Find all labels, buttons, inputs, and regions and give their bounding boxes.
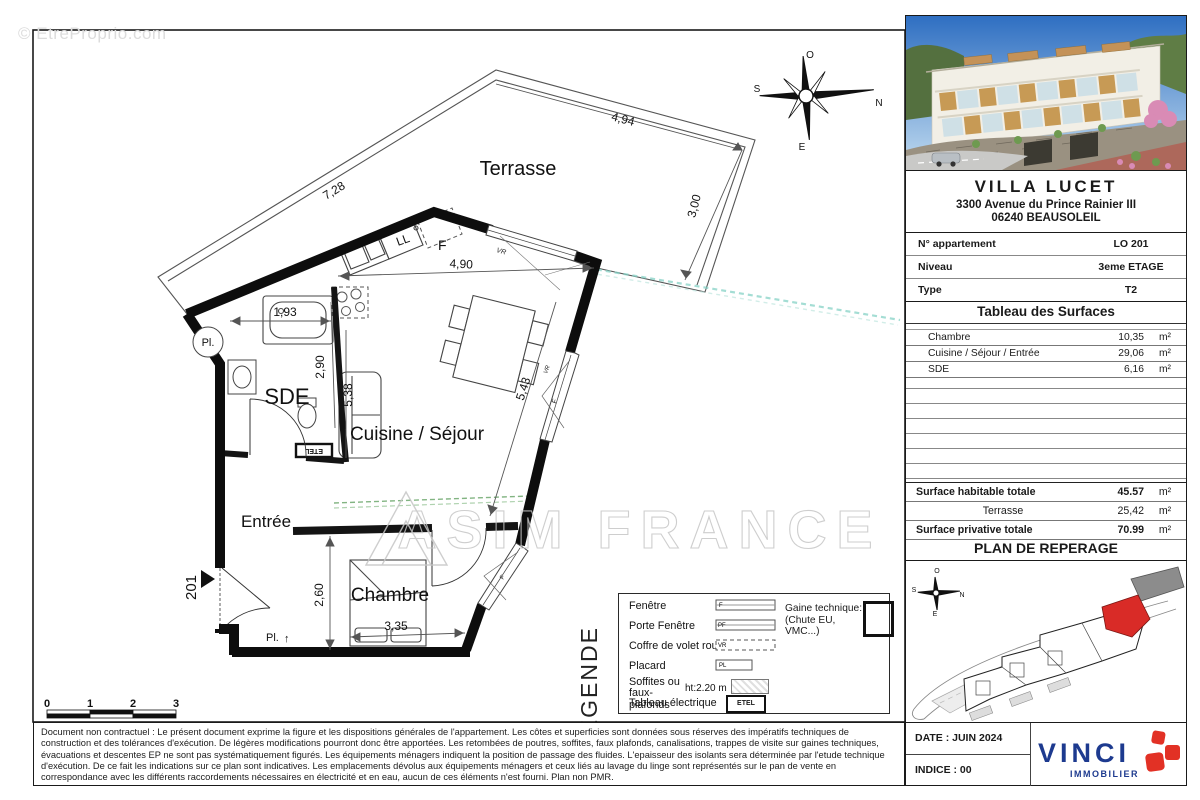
room-label-sde: SDE — [264, 384, 309, 409]
surface-row-cuisine: Cuisine / Séjour / Entrée 29,06 m² — [906, 346, 1186, 362]
compass-n: N — [875, 98, 882, 109]
panel-footer: DATE : JUIN 2024 INDICE : 00 VINCI IMMOB… — [906, 722, 1186, 786]
watermark-etreproprio: © EtreProprio.com — [18, 24, 167, 44]
total-unit: m² — [1144, 505, 1186, 517]
surface-row-chambre: Chambre 10,35 m² — [906, 330, 1186, 346]
room-label-chambre: Chambre — [351, 585, 429, 606]
scale-0: 0 — [44, 698, 50, 710]
entrance-arrow — [201, 570, 215, 588]
shutter-symbol-tag: VR — [718, 643, 727, 649]
window-right-upper: VR F — [540, 351, 579, 442]
surfaces-title: Tableau des Surfaces — [906, 300, 1186, 324]
site-road-upper — [1131, 567, 1184, 601]
address-block: VILLA LUCET 3300 Avenue du Prince Rainie… — [906, 170, 1186, 232]
dim-2-60: 2,60 — [312, 583, 326, 607]
placard-symbol-tag: PL — [719, 663, 727, 669]
site-compass-o: O — [934, 568, 940, 575]
dim-4-90: 4,90 — [449, 256, 473, 271]
scale-3: 3 — [173, 698, 179, 710]
legend-soffites-height: ht:2.20 m — [685, 683, 727, 694]
legend-label-porte-fenetre: Porte Fenêtre — [629, 620, 695, 632]
etel-label: ETEL — [304, 447, 323, 454]
address-line2: 06240 BEAUSOLEIL — [906, 212, 1186, 224]
surface-value: 29,06 — [1100, 348, 1144, 359]
surface-unit: m² — [1144, 348, 1186, 359]
soffit-symbol — [731, 679, 769, 694]
legend-label-placard: Placard — [629, 660, 666, 672]
legend-box: Fenêtre F Porte Fenêtre PF Coffre de vol… — [618, 593, 890, 714]
electrical-panel-symbol: ETEL — [726, 695, 766, 713]
legend-gaine: Gaine technique: (Chute EU, VMC...) — [785, 603, 863, 638]
info-value: T2 — [1076, 284, 1186, 296]
compass-o: O — [806, 50, 814, 61]
info-row-niveau: Niveau 3eme ETAGE — [906, 256, 1186, 279]
footer-left: DATE : JUIN 2024 INDICE : 00 — [906, 723, 1030, 786]
total-value: 70.99 — [1100, 524, 1144, 536]
total-label: Surface habitable totale — [906, 486, 1100, 498]
site-compass-n: N — [959, 592, 964, 599]
vinci-logo-mark — [1144, 730, 1179, 772]
surface-unit: m² — [1144, 332, 1186, 343]
terrace-outline — [158, 70, 755, 314]
info-label: N° appartement — [906, 238, 1076, 250]
window-symbol: F — [715, 598, 777, 617]
unit-number: 201 — [183, 575, 200, 600]
info-row-appartement: N° appartement LO 201 — [906, 233, 1186, 256]
site-compass: O S N E — [912, 568, 965, 618]
window-top: VR — [486, 225, 590, 290]
info-value: LO 201 — [1076, 238, 1186, 250]
scale-1: 1 — [87, 698, 93, 710]
vinci-logo: VINCI IMMOBILIER — [1030, 723, 1186, 786]
watermark-asim-text: ASIM FRANCE — [398, 500, 883, 560]
total-terrasse-row: Terrasse 25,42 m² — [906, 502, 1186, 521]
info-label: Type — [906, 284, 1076, 296]
legend-label-tableau: Tableau électrique — [629, 697, 717, 709]
surface-label: Cuisine / Séjour / Entrée — [906, 348, 1100, 359]
address-line1: 3300 Avenue du Prince Rainier III — [906, 199, 1186, 211]
plan-sheet: © EtreProprio.com — [0, 0, 1200, 800]
total-unit: m² — [1144, 486, 1186, 498]
legal-footnote: Plan non PMR. — [551, 772, 614, 782]
site-compass-e: E — [933, 611, 938, 618]
placard-symbol: PL — [715, 658, 755, 677]
dim-3-35: 3,35 — [384, 619, 408, 633]
dim-3-00: 3,00 — [684, 193, 704, 219]
window-top-vr: VR — [495, 247, 506, 256]
title-block: VILLA LUCET 3300 Avenue du Prince Rainie… — [905, 15, 1187, 786]
door-window-symbol: PF — [715, 618, 777, 637]
dining-table — [437, 292, 550, 397]
vinci-logo-text: VINCI — [1038, 738, 1130, 768]
placard-bottom-label: Pl. — [266, 632, 279, 644]
watermark-asim: ASIM FRANCE — [366, 492, 883, 565]
compass-rose: O S N E — [754, 48, 883, 153]
info-row-type: Type T2 — [906, 279, 1186, 302]
placard-bottom-arrow: ↑ — [284, 633, 290, 645]
legal-text: Document non contractuel : Le présent do… — [41, 727, 885, 782]
indice-field: INDICE : 00 — [906, 755, 1030, 786]
room-label-terrasse: Terrasse — [480, 158, 557, 180]
compass-s: S — [754, 84, 761, 95]
kitchen-window-label: F — [438, 237, 447, 253]
dim-4-94: 4,94 — [610, 109, 636, 129]
placard-circle-label: Pl. — [202, 337, 215, 349]
compass-e: E — [799, 142, 806, 153]
total-value: 25,42 — [1100, 505, 1144, 517]
window-right-vr: VR — [543, 364, 552, 375]
total-habitable-row: Surface habitable totale 45.57 m² — [906, 483, 1186, 502]
terrace-glazing-dashes — [588, 268, 900, 325]
residence-name: VILLA LUCET — [906, 177, 1186, 197]
empty-table-rows — [906, 374, 1186, 479]
info-value: 3eme ETAGE — [1076, 261, 1186, 273]
legal-notice: Document non contractuel : Le présent do… — [33, 722, 905, 786]
site-map: O S N E — [906, 561, 1186, 721]
totals-table: Surface habitable totale 45.57 m² Terras… — [906, 482, 1186, 540]
total-unit: m² — [1144, 524, 1186, 536]
surface-value: 10,35 — [1100, 332, 1144, 343]
surfaces-table: Chambre 10,35 m² Cuisine / Séjour / Entr… — [906, 329, 1186, 378]
door-window-symbol-tag: PF — [718, 623, 726, 629]
scale-bar: 0 1 2 3 — [44, 698, 179, 718]
dim-7-28: 7,28 — [320, 178, 348, 202]
washbasin — [228, 360, 256, 394]
dim-1-93: 1,93 — [273, 305, 297, 319]
total-value: 45.57 — [1100, 486, 1144, 498]
total-label: Surface privative totale — [906, 524, 1100, 536]
dim-2-90: 2,90 — [313, 355, 327, 379]
room-label-cuisine: Cuisine / Séjour — [350, 424, 485, 445]
total-label: Terrasse — [906, 505, 1100, 517]
surface-label: Chambre — [906, 332, 1100, 343]
dim-5-38: 5,38 — [341, 383, 355, 407]
door-entrance — [220, 568, 270, 630]
placard-circle: Pl. — [193, 327, 223, 357]
legend-label-fenetre: Fenêtre — [629, 600, 666, 612]
vinci-logo-sub: IMMOBILIER — [1070, 769, 1139, 779]
scale-2: 2 — [130, 698, 136, 710]
legend-gaine-sub: (Chute EU, VMC...) — [785, 615, 835, 638]
legend-gaine-label: Gaine technique: — [785, 603, 862, 614]
shutter-symbol: VR — [715, 638, 777, 657]
site-compass-s: S — [912, 587, 917, 594]
info-label: Niveau — [906, 261, 1076, 273]
apartment-info: N° appartement LO 201 Niveau 3eme ETAGE … — [906, 232, 1186, 302]
technical-duct-symbol — [863, 601, 894, 637]
date-field: DATE : JUIN 2024 — [906, 723, 1030, 755]
building-photo — [906, 16, 1186, 170]
reperage-title: PLAN DE REPERAGE — [906, 537, 1186, 561]
room-label-entree: Entrée — [241, 512, 291, 531]
window-symbol-tag: F — [719, 603, 723, 609]
